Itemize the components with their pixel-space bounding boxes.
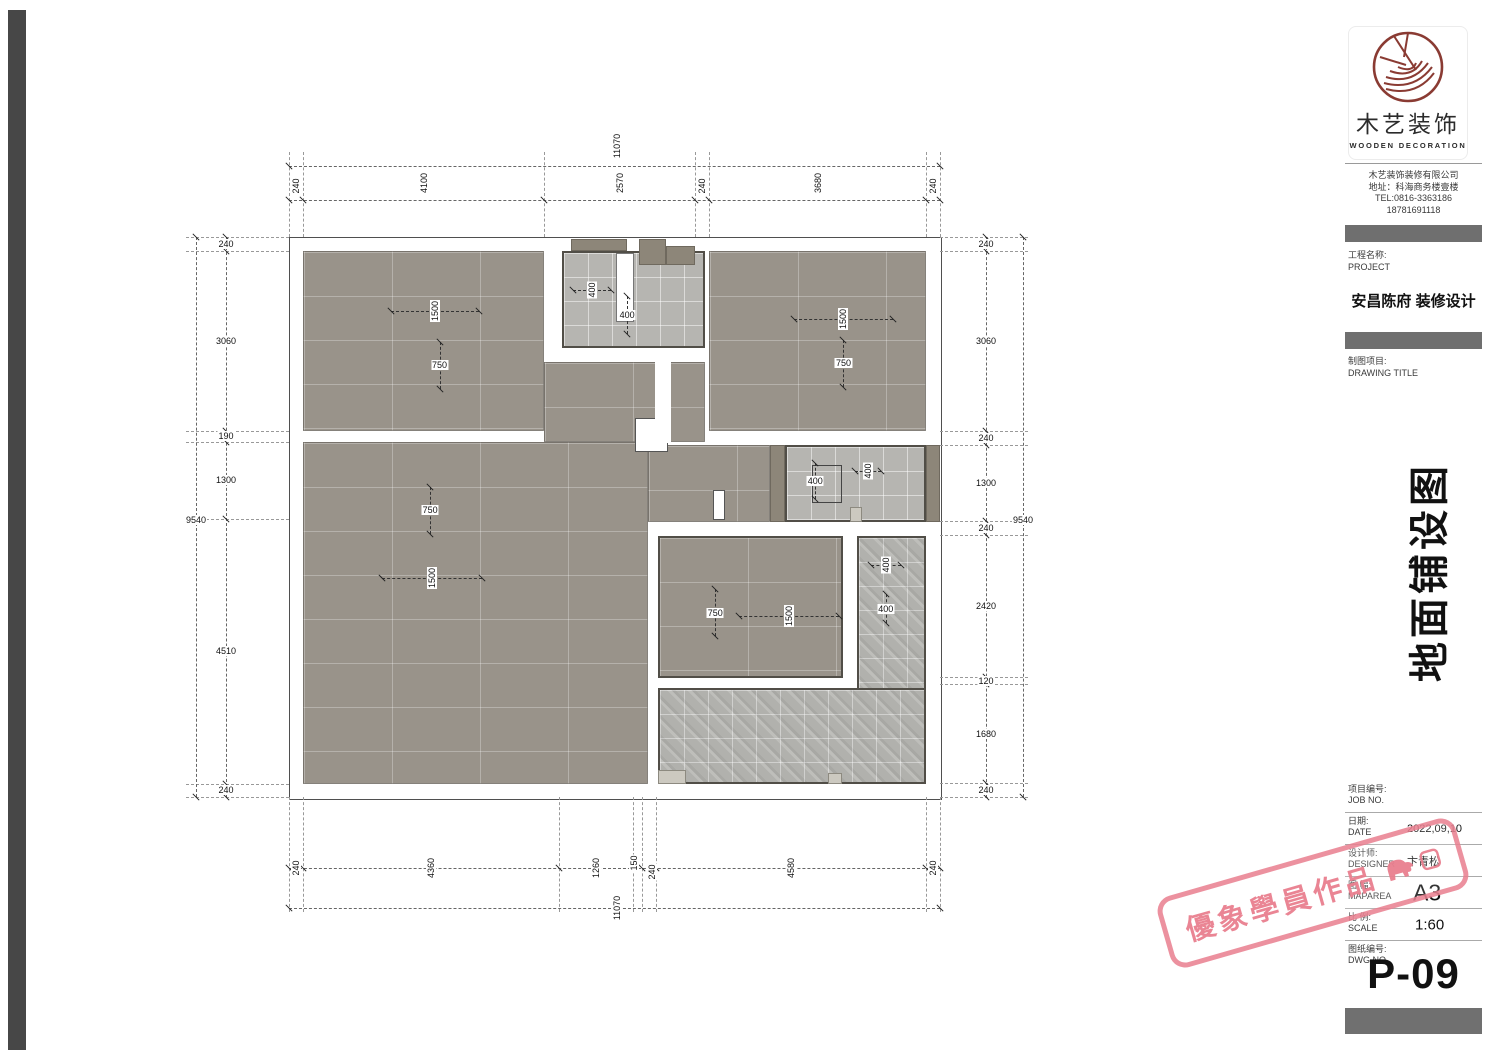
dim-label: 240	[291, 859, 301, 876]
company-info: 木艺装饰装修有限公司 地址：科海商务楼壹楼 TEL:0816-3363186 1…	[1345, 170, 1482, 216]
divider-bar	[1345, 1008, 1482, 1034]
room-bath-top	[562, 251, 704, 348]
dim-label: 400	[587, 281, 597, 298]
meta-label-cn: 项目编号:	[1348, 784, 1482, 795]
dim-label: 1500	[430, 299, 440, 321]
dim-label: 2420	[975, 601, 997, 611]
extension-line	[303, 152, 304, 237]
dim-chain-line	[226, 237, 227, 797]
room-bedroom-top-right	[709, 251, 925, 431]
meta-label-en: JOB NO.	[1348, 795, 1482, 806]
dim-chain-line	[289, 200, 940, 201]
dim-label: 3060	[215, 336, 237, 346]
meta-row-job-no-: 项目编号:JOB NO.	[1345, 781, 1482, 812]
divider-bar	[1345, 225, 1482, 242]
wall-fill-block	[639, 239, 666, 265]
extension-line	[709, 152, 710, 237]
extension-line	[186, 251, 289, 252]
dim-label: 4360	[426, 857, 436, 879]
dim-label: 240	[977, 433, 994, 443]
dim-label: 240	[217, 785, 234, 795]
extension-line	[186, 797, 289, 798]
dim-chain-line	[289, 166, 940, 167]
dim-chain-line	[289, 868, 940, 869]
dim-label: 400	[881, 556, 891, 573]
dim-label: 11070	[612, 895, 622, 921]
dim-label: 240	[217, 239, 234, 249]
extension-line	[940, 237, 1028, 238]
wall-fill-block	[571, 239, 627, 251]
company-tel: TEL:0816-3363186	[1345, 193, 1482, 205]
drawing-number: P-09	[1345, 950, 1482, 998]
extension-line	[940, 783, 1028, 784]
brand-name-en: WOODEN DECORATION	[1349, 141, 1467, 150]
dim-label: 3060	[975, 336, 997, 346]
dim-label: 4510	[215, 646, 237, 656]
floor-plan-canvas: 1500750400400150075075015004004007501500…	[0, 0, 1100, 1061]
dim-label: 400	[863, 463, 873, 480]
extension-line	[940, 431, 1028, 432]
company-logo: 木艺装饰 WOODEN DECORATION	[1348, 26, 1468, 160]
dim-label: 1260	[591, 857, 601, 879]
dim-label: 240	[928, 859, 938, 876]
dim-label: 1500	[838, 308, 848, 330]
company-address: 地址：科海商务楼壹楼	[1345, 182, 1482, 194]
dim-label: 750	[707, 608, 724, 618]
dim-label: 750	[835, 358, 852, 368]
project-label-cn: 工程名称:	[1348, 250, 1387, 261]
dim-label: 9540	[1012, 515, 1034, 525]
extension-line	[186, 431, 289, 432]
dim-label: 240	[977, 785, 994, 795]
dim-label: 1500	[427, 567, 437, 589]
extension-line	[303, 797, 304, 912]
door-threshold	[658, 770, 686, 785]
dim-label: 750	[431, 360, 448, 370]
dim-chain-line	[986, 237, 987, 797]
wall-fill-block	[926, 445, 940, 521]
dim-label: 1500	[784, 605, 794, 627]
extension-line	[940, 445, 1028, 446]
dim-label: 4100	[419, 172, 429, 194]
extension-line	[544, 152, 545, 237]
project-name: 安昌陈府 装修设计	[1345, 290, 1482, 311]
dim-label: 1300	[215, 475, 237, 485]
dim-label: 750	[422, 505, 439, 515]
dim-label: 190	[217, 431, 234, 441]
extension-line	[186, 442, 289, 443]
room-bedroom-middle	[658, 536, 843, 678]
wall-fill-block	[666, 246, 695, 265]
door-threshold	[828, 773, 843, 784]
drawing-label-cn: 制图项目:	[1348, 356, 1387, 367]
project-label-en: PROJECT	[1348, 262, 1390, 273]
dim-label: 11070	[612, 133, 622, 159]
dim-label: 9540	[185, 515, 207, 525]
dim-label: 240	[928, 177, 938, 194]
extension-line	[559, 797, 560, 912]
extension-line	[940, 797, 1028, 798]
room-hall-right	[648, 445, 770, 521]
extension-line	[186, 237, 289, 238]
extension-line	[289, 797, 290, 912]
extension-line	[642, 797, 643, 912]
extension-line	[940, 535, 1028, 536]
drawing-sheet: 1500750400400150075075015004004007501500…	[0, 0, 1500, 1061]
dim-label: 240	[977, 523, 994, 533]
dim-label: 3680	[813, 172, 823, 194]
extension-line	[940, 251, 1028, 252]
dim-label: 1680	[975, 729, 997, 739]
meta-value: 1:60	[1415, 916, 1444, 933]
brand-name-cn: 木艺装饰	[1349, 105, 1467, 139]
wall-fill-block	[770, 445, 785, 521]
extension-line	[926, 152, 927, 237]
dim-label: 150	[629, 854, 639, 871]
extension-line	[186, 784, 289, 785]
hall-strip	[655, 362, 670, 443]
drawing-label-en: DRAWING TITLE	[1348, 368, 1418, 379]
divider-bar	[1345, 332, 1482, 349]
dim-label: 240	[977, 239, 994, 249]
dim-label: 240	[697, 177, 707, 194]
dim-label: 400	[807, 476, 824, 486]
door-mid	[713, 490, 725, 521]
elephant-icon	[1378, 850, 1418, 886]
room-bedroom-top-left	[303, 251, 544, 431]
drawing-title-vertical: 地面铺设图	[1397, 462, 1443, 682]
room-living-dining	[303, 442, 648, 784]
extension-line	[656, 797, 657, 912]
dim-label: 400	[877, 604, 894, 614]
extension-line	[940, 797, 941, 912]
dim-label: 400	[619, 310, 636, 320]
dim-label: 120	[977, 676, 994, 686]
room-hall-upper	[544, 362, 705, 442]
door-threshold	[850, 507, 862, 521]
divider	[1345, 163, 1482, 164]
dim-label: 240	[647, 863, 657, 880]
extension-line	[926, 797, 927, 912]
stamp-badge-icon	[1418, 847, 1443, 872]
logo-mark-icon	[1350, 27, 1466, 105]
room-balcony-bottom	[658, 688, 926, 784]
dim-label: 2570	[615, 172, 625, 194]
dim-label: 4580	[786, 857, 796, 879]
dim-label: 240	[291, 177, 301, 194]
company-name: 木艺装饰装修有限公司	[1345, 170, 1482, 182]
company-tel2: 18781691118	[1345, 205, 1482, 217]
dim-label: 1300	[975, 478, 997, 488]
extension-line	[695, 152, 696, 237]
